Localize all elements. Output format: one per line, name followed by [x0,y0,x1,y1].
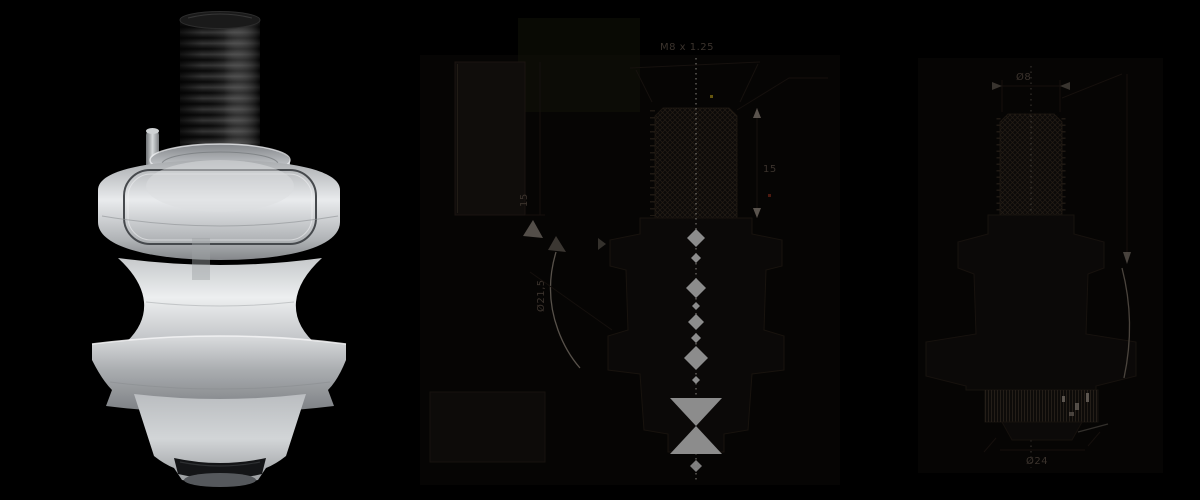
maroon-fleck [768,194,771,197]
section-stud-hatched [999,114,1064,215]
dimension-label: Ø21,5 [535,279,547,312]
dimension-label: 15 [519,193,530,207]
olive-tint-patch [518,18,640,112]
yellow-fleck [710,95,713,98]
knurled-band [985,390,1098,422]
thread-spec-label: M8 x 1.25 [660,42,714,53]
front-stud-hatched [653,108,738,218]
section-base-label: Ø24 [1026,455,1048,467]
spool-dimension-sheet: 02-1-10 [0,0,1200,500]
section-foot [1002,422,1082,440]
thread-length-label: 15 [763,164,777,175]
section-thread-label: Ø8 [1016,71,1031,83]
technical-drawing: 15 Ø21,5 M8 x 1.25 [0,0,1200,500]
